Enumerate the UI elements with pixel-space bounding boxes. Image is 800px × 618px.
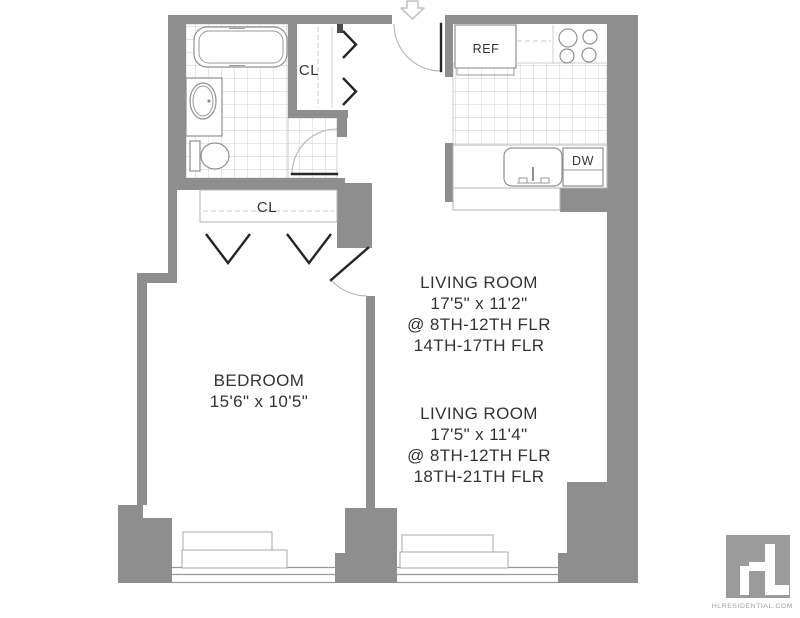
wall-segment <box>560 188 607 212</box>
wall-segment <box>168 190 177 273</box>
wall-segment <box>168 24 186 178</box>
bedroom-door <box>331 248 368 296</box>
bedroom-window <box>172 532 335 583</box>
kitchen-base-cabinet <box>453 188 560 210</box>
refrigerator-label: REF <box>473 42 500 56</box>
radiator-unit <box>182 550 287 568</box>
wall-segment <box>168 178 345 190</box>
radiator-unit <box>402 535 493 552</box>
burner <box>583 30 597 44</box>
kitchen-sink <box>504 148 562 186</box>
hall-closet-label: CL <box>299 62 319 79</box>
floor-plan-canvas: CL CL REF <box>0 0 800 618</box>
bathtub <box>194 27 287 67</box>
wall-segment <box>288 24 297 110</box>
living-room-b-floors1: @ 8TH-12TH FLR <box>407 446 551 465</box>
burner <box>560 49 574 63</box>
window-pier-left <box>118 505 143 583</box>
bedroom-closet-label: CL <box>257 199 277 216</box>
window-pier-right-step <box>558 553 567 583</box>
bedroom-name: BEDROOM <box>214 371 305 390</box>
wall-segment <box>366 296 375 508</box>
wall-segment <box>337 118 347 137</box>
living-room-b-floors2: 18TH-21TH FLR <box>414 467 545 486</box>
closet-door-pivot-stub <box>337 24 343 33</box>
stove-cooktop <box>516 25 607 63</box>
living-room-window <box>397 535 558 583</box>
wall-segment <box>168 15 392 24</box>
living-room-a-name: LIVING ROOM <box>420 273 538 292</box>
wall-segment <box>607 24 638 482</box>
living-room-a-dimensions: 17'5" x 11'2" <box>430 294 527 313</box>
entry-arrow-icon <box>401 1 424 19</box>
window-pier-center <box>345 508 397 553</box>
bedroom-dimensions: 15'6" x 10'5" <box>210 392 308 411</box>
living-room-label-a: LIVING ROOM 17'5" x 11'2" @ 8TH-12TH FLR… <box>407 273 551 355</box>
bedroom-closet: CL <box>200 190 337 263</box>
website-url: HLRESIDENTIAL.COM <box>712 603 793 610</box>
refrigerator: REF <box>455 25 516 75</box>
living-room-b-name: LIVING ROOM <box>420 404 538 423</box>
wall-segment <box>137 283 147 505</box>
wall-segment <box>137 273 177 283</box>
window-pier-right <box>567 482 638 583</box>
bifold-door-chevron <box>343 31 356 58</box>
bifold-door-chevron <box>287 234 331 263</box>
wall-segment <box>337 183 372 248</box>
wall-segment <box>447 15 638 24</box>
radiator-unit <box>183 532 272 550</box>
living-room-b-dimensions: 17'5" x 11'4" <box>430 425 527 444</box>
dishwasher-label: DW <box>572 154 594 168</box>
living-room-label-b: LIVING ROOM 17'5" x 11'4" @ 8TH-12TH FLR… <box>407 404 551 486</box>
wall-segment <box>445 143 453 202</box>
wall-segment <box>445 15 453 77</box>
window-pier-center-step <box>335 553 397 583</box>
burner <box>559 29 577 47</box>
window-pier-left-step <box>143 518 172 583</box>
radiator-unit <box>400 552 508 568</box>
bathroom-vanity-sink <box>186 78 222 136</box>
entry <box>394 1 441 71</box>
dishwasher: DW <box>563 148 603 186</box>
burner <box>582 48 596 62</box>
wall-segment <box>288 110 348 118</box>
bedroom-label: BEDROOM 15'6" x 10'5" <box>210 371 308 411</box>
hl-residential-logo: HLRESIDENTIAL.COM <box>712 535 793 610</box>
hall-closet: CL <box>299 27 356 108</box>
bifold-door-chevron <box>206 234 250 263</box>
floor-plan-page: CL CL REF <box>0 0 800 618</box>
living-room-a-floors1: @ 8TH-12TH FLR <box>407 315 551 334</box>
toilet <box>190 141 229 171</box>
bifold-door-chevron <box>343 78 356 105</box>
living-room-a-floors2: 14TH-17TH FLR <box>414 336 545 355</box>
